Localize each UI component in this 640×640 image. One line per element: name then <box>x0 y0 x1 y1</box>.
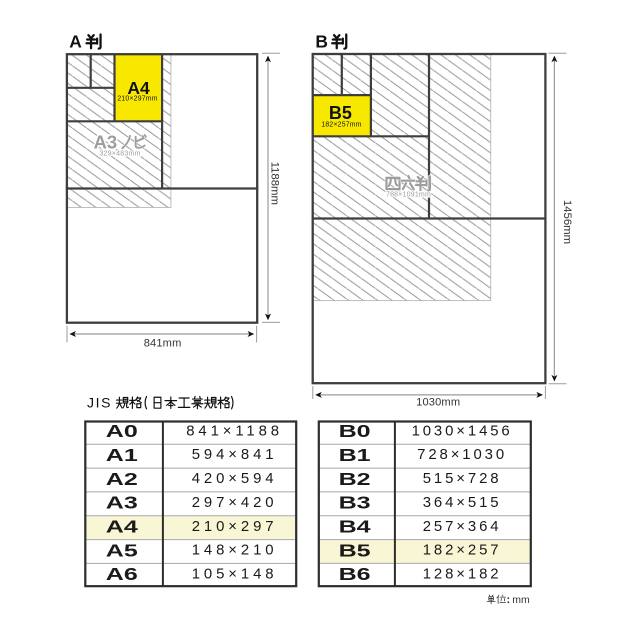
svg-text:mm: mm <box>512 594 530 606</box>
svg-text:A4: A4 <box>106 517 138 537</box>
svg-text:A0: A0 <box>106 421 138 441</box>
svg-text:1030×1456: 1030×1456 <box>412 423 513 439</box>
svg-text:148×210: 148×210 <box>192 543 278 559</box>
svg-text:210×297mm: 210×297mm <box>117 96 157 103</box>
svg-text:B5: B5 <box>329 103 352 123</box>
svg-text:297×420: 297×420 <box>192 495 278 511</box>
svg-text:A1: A1 <box>106 445 138 465</box>
svg-text:515×728: 515×728 <box>423 471 502 487</box>
svg-text:128×182: 128×182 <box>423 566 502 582</box>
svg-text:B0: B0 <box>339 421 371 441</box>
svg-text:1188mm: 1188mm <box>269 162 281 205</box>
svg-text:210×297: 210×297 <box>192 519 278 535</box>
svg-text:A5: A5 <box>106 540 138 560</box>
svg-text:B1: B1 <box>339 445 371 465</box>
svg-text:1030mm: 1030mm <box>416 397 460 409</box>
svg-text:1456mm: 1456mm <box>561 200 573 244</box>
svg-text:B4: B4 <box>339 517 371 537</box>
svg-text:B5: B5 <box>339 540 371 560</box>
svg-text:182×257: 182×257 <box>423 543 502 559</box>
svg-text:A: A <box>69 31 82 51</box>
svg-text:364×515: 364×515 <box>423 495 502 511</box>
svg-text:841×1188: 841×1188 <box>186 423 283 439</box>
svg-text:841mm: 841mm <box>144 337 182 349</box>
svg-text:594×841: 594×841 <box>192 447 278 463</box>
svg-text:105×148: 105×148 <box>192 566 278 582</box>
svg-text:A6: A6 <box>106 564 138 584</box>
svg-text:182×257mm: 182×257mm <box>321 122 361 129</box>
svg-text:B2: B2 <box>339 469 371 489</box>
svg-text:JIS: JIS <box>87 395 112 411</box>
svg-text:B: B <box>315 31 328 51</box>
svg-text:788×1091mm: 788×1091mm <box>386 191 431 198</box>
svg-text:B6: B6 <box>339 564 371 584</box>
svg-text:B3: B3 <box>339 493 371 513</box>
svg-text:257×364: 257×364 <box>423 519 502 535</box>
svg-text:A3: A3 <box>106 493 138 513</box>
svg-text:420×594: 420×594 <box>192 471 278 487</box>
svg-text:728×1030: 728×1030 <box>417 447 507 463</box>
svg-text:A2: A2 <box>106 469 138 489</box>
svg-text:329×483mm: 329×483mm <box>99 150 140 157</box>
